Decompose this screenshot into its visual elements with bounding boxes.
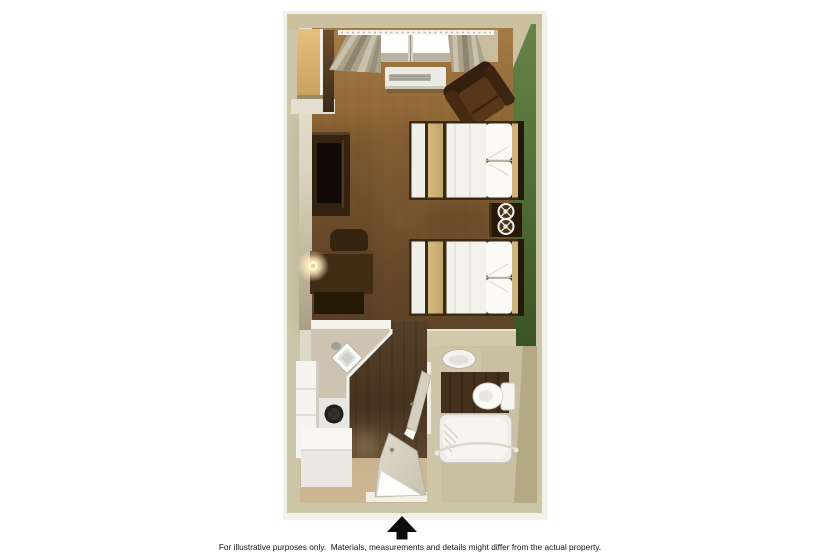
svg-text:For illustrative purposes only: For illustrative purposes only. Material… <box>219 542 601 552</box>
